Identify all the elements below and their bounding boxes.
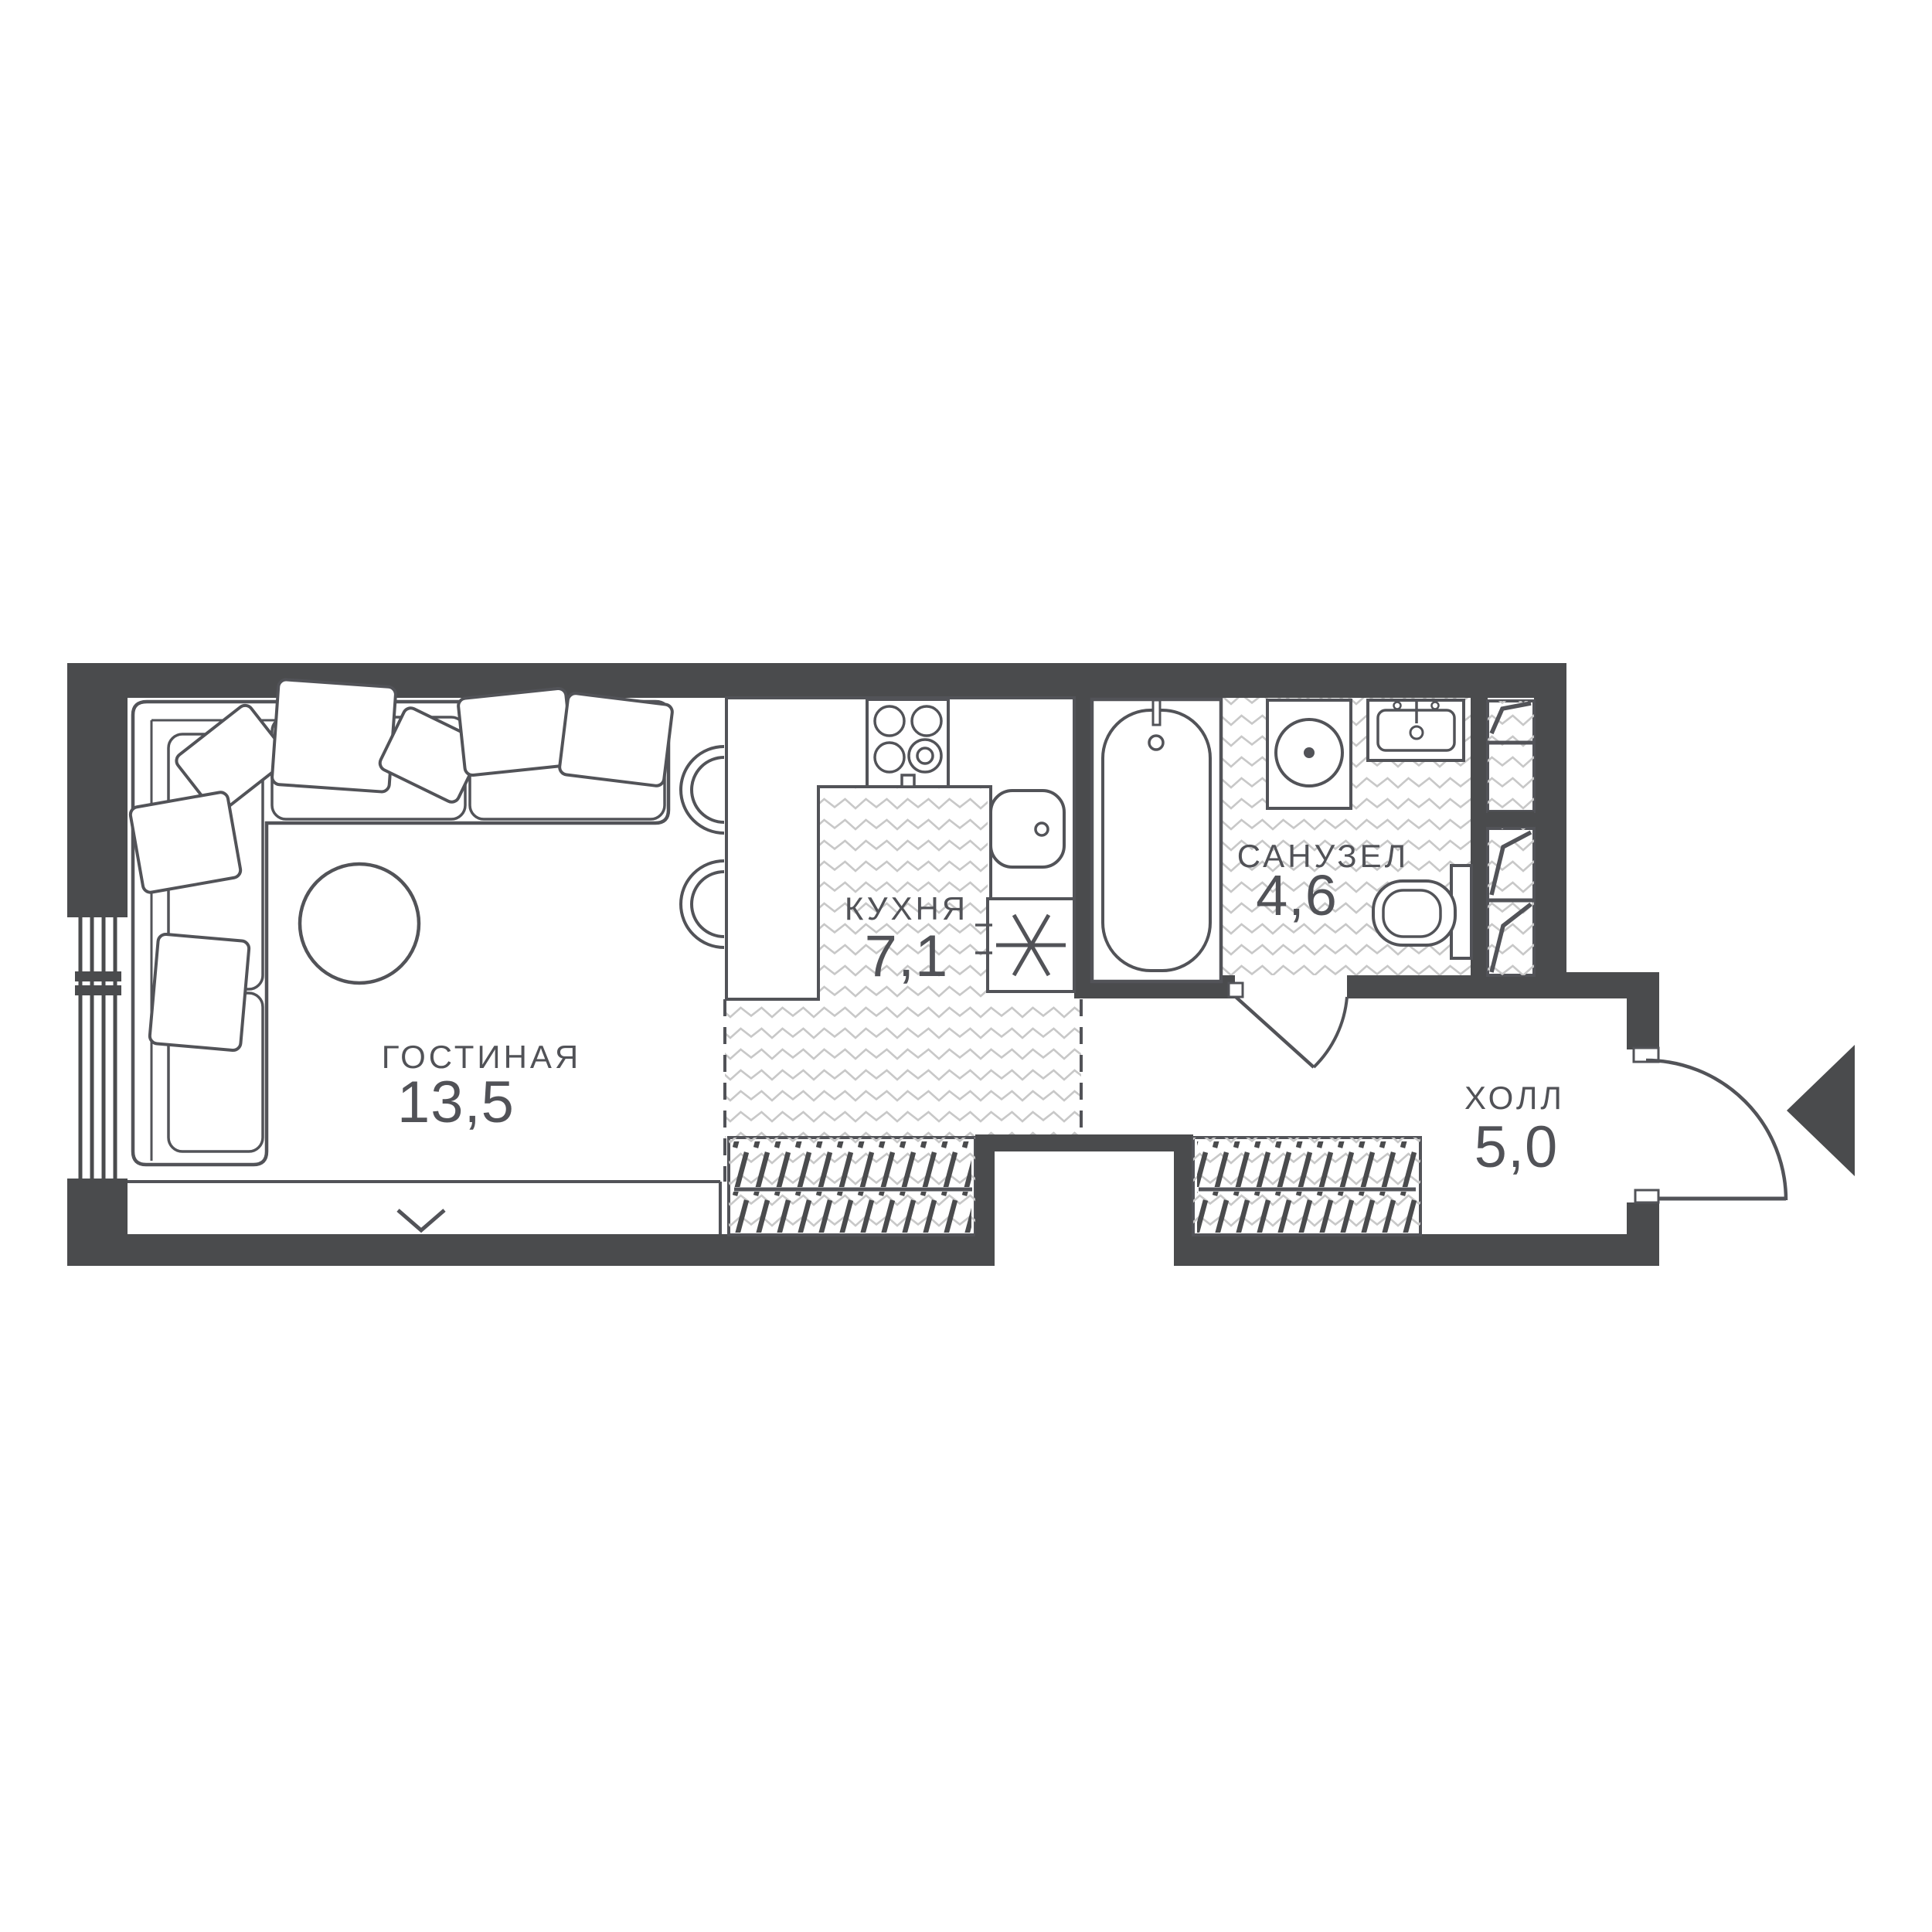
shelving-units — [1488, 701, 1534, 975]
wall-bottom — [67, 1234, 1659, 1266]
bathroom-sink — [1368, 700, 1464, 760]
washer-dot-icon — [1304, 747, 1315, 758]
wall-niche — [975, 1134, 1193, 1266]
room-name-hall: ХОЛЛ — [1464, 1080, 1565, 1116]
bathtub-tap-icon — [1153, 700, 1160, 725]
room-area-bathroom: 4,6 — [1256, 863, 1338, 927]
pillow-icon — [271, 679, 396, 792]
pillow-icon — [457, 688, 573, 776]
wall-entry-stub-top — [1627, 998, 1659, 1049]
stove — [867, 699, 948, 787]
room-area-kitchen: 7,1 — [865, 923, 949, 989]
room-area-living: 13,5 — [397, 1070, 515, 1135]
wall-hall-jog — [1534, 972, 1659, 998]
wall-right-upper — [1534, 698, 1566, 975]
room-name-kitchen: КУХНЯ — [845, 890, 968, 927]
washing-machine-bathroom — [1267, 700, 1351, 808]
floor-plan-page: ГОСТИНАЯ 13,5 КУХНЯ 7,1 САНУЗЕЛ 4,6 ХОЛЛ… — [0, 0, 1932, 1932]
door-hinge — [1229, 983, 1243, 997]
wall-bathroom-shelving — [1471, 698, 1488, 975]
wardrobe-left — [729, 1138, 975, 1235]
stove-knob — [902, 775, 914, 787]
door-hinge — [1635, 1190, 1658, 1202]
wall-left-pier — [67, 663, 128, 917]
pillow-icon — [559, 692, 673, 787]
pillow-icon — [149, 934, 250, 1051]
bathtub — [1092, 699, 1221, 981]
wardrobe-right — [1193, 1138, 1420, 1235]
coffee-table — [300, 864, 419, 983]
pillow-icon — [129, 791, 242, 894]
room-area-hall: 5,0 — [1475, 1114, 1559, 1180]
washing-machine-kitchen — [975, 899, 1074, 992]
kitchen-sink — [991, 791, 1064, 867]
floor-plan: ГОСТИНАЯ 13,5 КУХНЯ 7,1 САНУЗЕЛ 4,6 ХОЛЛ… — [0, 0, 1932, 1932]
wall-kitchen-bathroom — [1074, 698, 1091, 998]
window-mullion-tick — [75, 985, 121, 995]
window-mullion-tick — [75, 971, 121, 981]
wall-entry-stub-bottom — [1627, 1202, 1659, 1266]
